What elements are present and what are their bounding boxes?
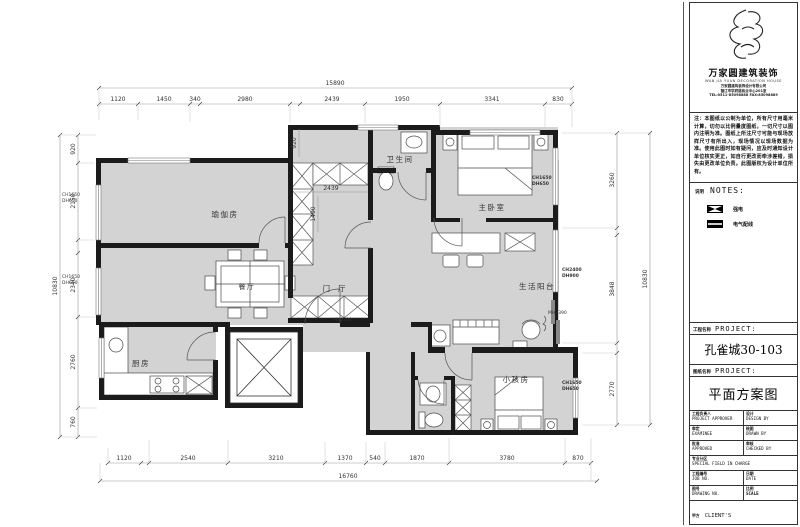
table-row: 图号 DRAWING NO. 比例 SCALE — [690, 486, 797, 501]
dim-label: 920 — [70, 143, 77, 155]
window-marker: CH1650 — [562, 380, 582, 386]
table-row: 批准 APPROVED 审核 CHECKED BY — [690, 441, 797, 456]
room-label-yoga: 瑜伽房 — [212, 209, 239, 219]
table-row: 工程负责人 PROJECT APPROVER 设计 DESIGN BY — [690, 411, 797, 426]
disclaimer-text: 注：本图纸以公制为单位，所有尺寸用毫米计算，切勿以比例量度图纸，一切尺寸以图内注… — [694, 116, 793, 176]
room-label-kids: 小孩房 — [503, 374, 530, 384]
legend: 强电 电气配线 — [695, 205, 792, 228]
cell-label-en: CHECKED BY — [746, 446, 795, 451]
cell-label-en: APPROVED — [692, 446, 741, 451]
kids-wardrobe — [455, 385, 471, 431]
project-label-en: PROJECT: — [715, 325, 757, 333]
room-label-hall: 门厅 — [323, 284, 354, 293]
dim-label: 340 — [189, 96, 201, 103]
dim-label: 3848 — [609, 281, 616, 296]
dim-label: 2540 — [180, 455, 195, 462]
floor-plan: 15890 1120 1450 340 2980 2439 1950 3341 … — [0, 0, 690, 527]
dim-label: 1120 — [110, 96, 125, 103]
dim-label: 3341 — [484, 96, 499, 103]
dim-label: 3210 — [268, 455, 283, 462]
logo-section: 万家圆建筑装饰 WAN JIA YUAN DECORATION HOUSE 万家… — [690, 3, 797, 113]
drawing-name: 平面方案图 — [690, 377, 797, 403]
dim-label: 16760 — [338, 473, 357, 480]
dim-label: 920 — [291, 137, 298, 149]
table-row: 审定 EXAMINEE 绘图 DRAWN BY — [690, 426, 797, 441]
window-marker: DH650 — [562, 386, 579, 392]
table-row: 工程编号 JOB NO. 日期 DATE — [690, 471, 797, 486]
dim-label: 760 — [70, 416, 77, 428]
company-logo-icon — [718, 7, 770, 65]
dim-label: 3780 — [499, 455, 514, 462]
legend-item: 电气配线 — [707, 220, 792, 228]
dim-label: 2770 — [609, 381, 616, 396]
door-marker: MH2200 — [333, 317, 352, 323]
disclaimer-section: 注：本图纸以公制为单位，所有尺寸用毫米计算，切勿以比例量度图纸，一切尺寸以图内注… — [690, 113, 797, 183]
window-marker: DH650 — [532, 181, 549, 187]
closet-top-wardrobe — [313, 163, 368, 185]
cell-label-en: EXAMINEE — [692, 431, 741, 436]
dim-label: 540 — [369, 455, 381, 462]
cell-label-en: JOB NO. — [692, 476, 741, 481]
closet-bottom-wardrobe — [291, 296, 371, 318]
dim-label: 10830 — [642, 269, 649, 288]
dim-label: 1490 — [310, 206, 317, 221]
window-marker: DH900 — [562, 273, 579, 279]
window-marker: CH1650 — [62, 274, 80, 280]
cell-label-en: PROJECT APPROVER — [692, 416, 741, 421]
dim-label: 2439 — [324, 96, 339, 103]
cell-label-en: DATE — [746, 476, 795, 481]
project-section: 工程名称 PROJECT: 孔雀城30-103 — [690, 323, 797, 365]
project-name: 孔雀城30-103 — [690, 335, 797, 358]
client-label-cn: 甲方 — [692, 513, 700, 518]
washing-machine — [430, 325, 450, 346]
company-address-3: TEL:0511-85098888 FAX:85098889 — [690, 93, 797, 98]
cell-label-en: DRAWING NO. — [692, 491, 741, 496]
dim-label: 3260 — [609, 172, 616, 187]
elevator-shaft — [230, 332, 298, 403]
legend-item: 强电 — [707, 205, 792, 213]
dim-label: 1950 — [394, 96, 409, 103]
sheet-border-line — [683, 2, 684, 525]
dim-label: 870 — [572, 455, 584, 462]
table-row: 专业分区 SPECIAL FIELD IN CHARGE — [690, 456, 797, 471]
dim-label: 830 — [552, 96, 564, 103]
drawing-label-cn: 图纸名称 — [693, 369, 711, 375]
keyboard-piano — [453, 320, 499, 344]
cell-label-en: DESIGN BY — [746, 416, 795, 421]
window-marker: DH650 — [62, 198, 78, 204]
room-label-balcony: 生活阳台 — [519, 281, 555, 291]
room-label-master: 主卧室 — [479, 202, 506, 212]
legend-label: 强电 — [733, 206, 743, 213]
dim-label: 2980 — [237, 96, 252, 103]
client-label-en: CLIENT'S — [705, 513, 732, 519]
strong-power-symbol-icon — [707, 205, 723, 213]
notes-label-cn: 说明 — [695, 189, 704, 195]
dim-label: 1120 — [116, 455, 131, 462]
cell-label-en: SPECIAL FIELD IN CHARGE — [692, 461, 795, 466]
window-marker: CH1650 — [532, 175, 552, 181]
door-marker: MH2390 — [548, 310, 567, 316]
room-label-bath: 卫生间 — [387, 154, 414, 164]
dim-label: 1370 — [337, 455, 352, 462]
title-block: 万家圆建筑装饰 WAN JIA YUAN DECORATION HOUSE 万家… — [689, 2, 798, 525]
cell-label-en: DRAWN BY — [746, 431, 795, 436]
dim-label: 1870 — [409, 455, 424, 462]
project-label-cn: 工程名称 — [693, 327, 711, 333]
room-label-dining: 餐厅 — [239, 282, 256, 291]
drawing-sheet: 15890 1120 1450 340 2980 2439 1950 3341 … — [0, 0, 800, 527]
drawing-title-section: 图纸名称 PROJECT: 平面方案图 — [690, 365, 797, 411]
dim-label: 2439 — [323, 185, 338, 192]
wiring-panel-symbol-icon — [707, 220, 723, 228]
signature-table: 工程负责人 PROJECT APPROVER 设计 DESIGN BY 审定 E… — [690, 411, 797, 524]
notes-section: 说明 NOTES: 强电 电气配线 — [690, 183, 797, 323]
drawing-label-en: PROJECT: — [715, 367, 757, 375]
dim-label: 15890 — [325, 80, 344, 87]
window-marker: CH2400 — [562, 267, 582, 273]
legend-label: 电气配线 — [733, 221, 753, 228]
company-name: 万家圆建筑装饰 — [690, 69, 797, 79]
dim-label: 1450 — [156, 96, 171, 103]
dim-label: 10830 — [52, 276, 59, 295]
notes-label-en: NOTES: — [710, 186, 745, 195]
room-label-kitchen: 厨房 — [132, 358, 150, 368]
balcony-cabinet — [505, 233, 535, 251]
window-marker: DH650 — [62, 280, 78, 286]
window-marker: CH1650 — [62, 192, 80, 198]
cell-label-en: SCALE — [746, 491, 795, 496]
dim-label: 2760 — [70, 354, 77, 369]
client-row: 甲方 CLIENT'S — [690, 501, 797, 524]
